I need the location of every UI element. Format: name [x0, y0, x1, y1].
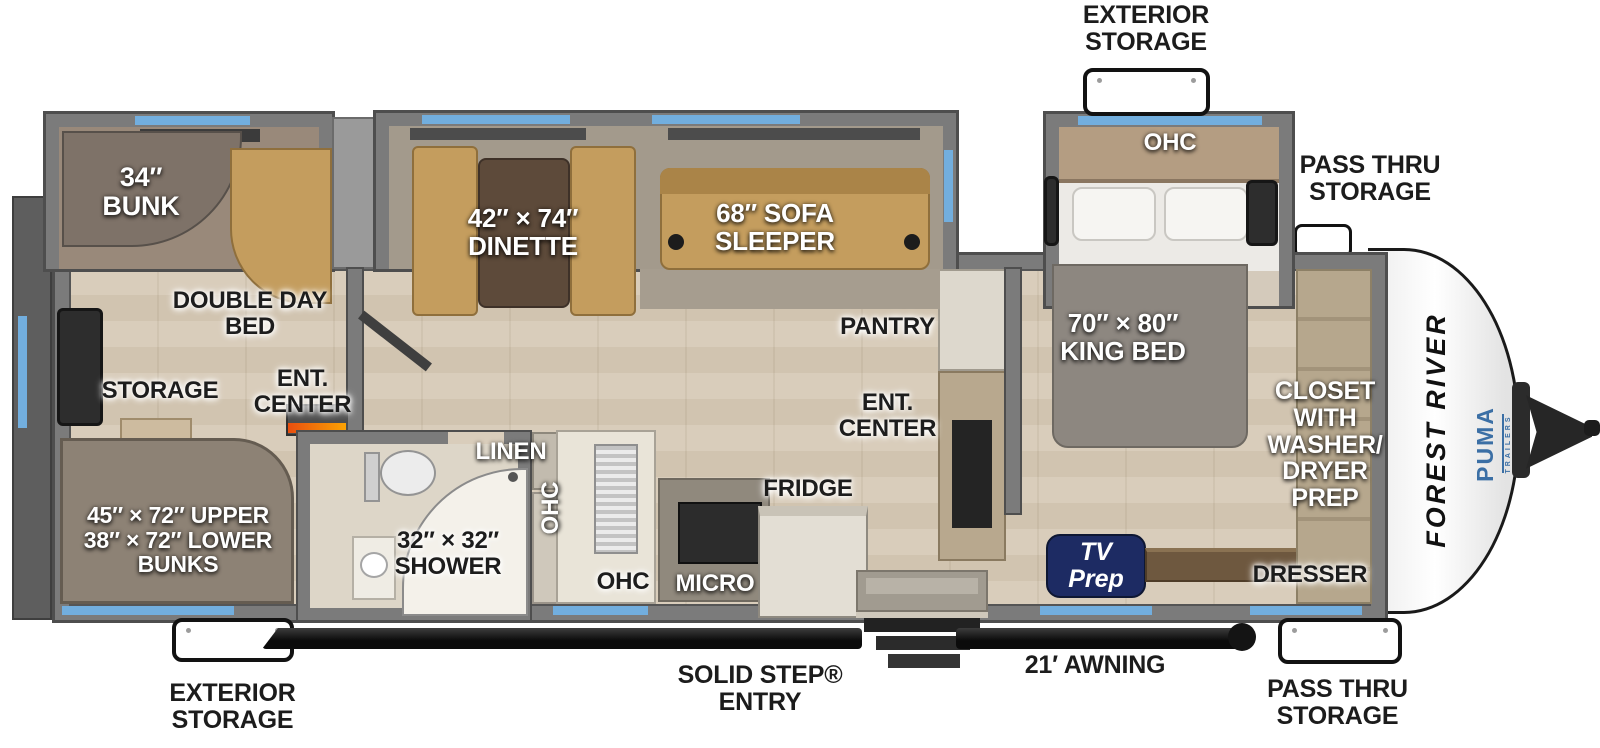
- label-shower: 32″ × 32″ SHOWER: [368, 528, 528, 579]
- awning-end-cap: [1228, 623, 1256, 651]
- entry-inner-step: [866, 578, 978, 594]
- entry-step-3: [888, 654, 960, 668]
- label-bunk-34: 34″ BUNK: [66, 163, 216, 221]
- hitch-a-frame: [1526, 392, 1592, 472]
- bottom-window-accent-bed2: [1250, 606, 1362, 615]
- tv-prep-badge: TV Prep: [1046, 534, 1146, 598]
- label-linen: LINEN: [451, 439, 571, 465]
- bedroom-slide-window-accent: [1078, 116, 1262, 125]
- bedroom-divider-wall: [1006, 269, 1020, 513]
- label-closet: CLOSET WITH WASHER/ DRYER PREP: [1255, 378, 1395, 512]
- bottom-window-accent-bed1: [1040, 606, 1152, 615]
- label-king-bed: 70″ × 80″ KING BED: [1033, 310, 1213, 366]
- kitchen-sink: [594, 444, 638, 554]
- label-ohc-wall: OHC: [538, 473, 564, 543]
- pillow-left: [1072, 187, 1156, 241]
- label-exterior-storage-top: EXTERIOR STORAGE: [1058, 2, 1234, 56]
- label-fridge: FRIDGE: [748, 476, 868, 502]
- pillow-right: [1164, 187, 1248, 241]
- hitch-coupler: [1584, 420, 1600, 436]
- living-carpet: [640, 269, 940, 309]
- sofa-window-accent: [652, 115, 800, 124]
- fridge: [758, 506, 868, 618]
- label-living-ent-center: ENT. CENTER: [810, 390, 965, 441]
- label-micro: MICRO: [655, 571, 775, 597]
- brand-maker-text: FOREST RIVER: [1421, 275, 1453, 585]
- dinette-pelmet: [410, 128, 586, 140]
- pass-thru-door-bottom: [1278, 618, 1402, 664]
- exterior-storage-door-top: [1083, 68, 1210, 116]
- brand-model-sub-text: TRAILERS: [1502, 415, 1512, 474]
- label-bedroom-ohc: OHC: [1130, 130, 1210, 156]
- slide-connector-wall: [332, 117, 378, 269]
- floorplan-canvas: FOREST RIVER PUMA TRAILERS: [0, 0, 1600, 748]
- label-pantry: PANTRY: [810, 314, 965, 340]
- label-entry: SOLID STEP® ENTRY: [660, 662, 860, 716]
- label-exterior-storage-bottom: EXTERIOR STORAGE: [145, 680, 320, 734]
- dinette-window-accent: [422, 115, 570, 124]
- shower-head: [508, 472, 518, 482]
- label-bunks: 45″ × 72″ UPPER 38″ × 72″ LOWER BUNKS: [75, 503, 281, 577]
- sofa-pelmet: [668, 128, 920, 140]
- bedroom-slide-left-window: [1044, 176, 1059, 246]
- label-sofa-sleeper: 68″ SOFA SLEEPER: [665, 200, 885, 256]
- label-double-day-bed: DOUBLE DAY BED: [155, 288, 345, 339]
- bunkroom-window: [57, 308, 103, 426]
- toilet-bowl: [380, 450, 436, 496]
- recess-window-accent: [944, 150, 953, 222]
- awning-bar-left: [262, 628, 862, 649]
- awning-bar-right: [956, 628, 1246, 649]
- label-pass-thru-top: PASS THRU STORAGE: [1280, 152, 1460, 206]
- bottom-window-accent-rear: [62, 606, 234, 615]
- bunk-slide-window-accent: [135, 116, 250, 125]
- bedroom-slide-right-window: [1246, 180, 1278, 246]
- label-pass-thru-bottom: PASS THRU STORAGE: [1250, 676, 1425, 730]
- toilet-tank: [364, 452, 380, 502]
- rear-window-accent: [18, 316, 27, 428]
- pass-thru-top-door: [1294, 224, 1352, 258]
- label-ohc-counter: OHC: [583, 569, 663, 595]
- sofa-cupholder-right: [904, 234, 920, 250]
- stove: [678, 502, 762, 564]
- brand-model-text: PUMA: [1474, 384, 1497, 504]
- label-dinette: 42″ × 74″ DINETTE: [413, 205, 633, 261]
- label-dresser: DRESSER: [1230, 562, 1390, 588]
- sofa-back: [660, 168, 930, 194]
- label-awning: 21′ AWNING: [1010, 652, 1180, 679]
- label-bunkroom-ent-center: ENT. CENTER: [245, 366, 360, 417]
- bottom-window-accent-bath: [553, 606, 648, 615]
- label-bunkroom-storage: STORAGE: [90, 378, 230, 404]
